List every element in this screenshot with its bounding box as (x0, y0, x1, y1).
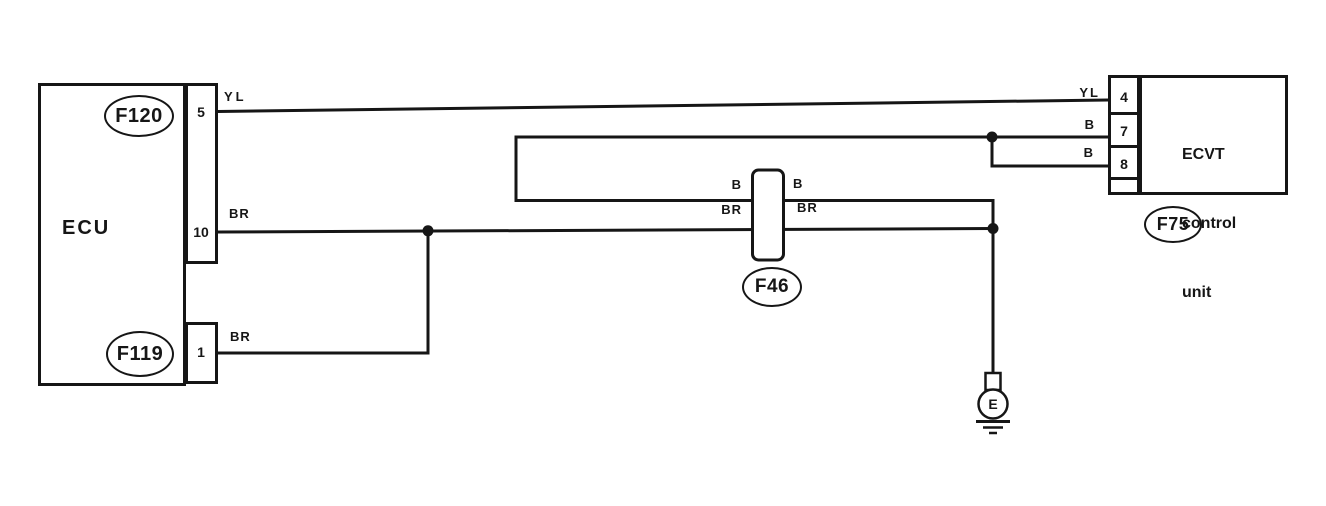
connector-id-f119-text: F119 (117, 343, 163, 366)
wire-label-b-pin7: B (1075, 117, 1095, 132)
ecvt-pin-4: 4 (1108, 89, 1140, 105)
wire-label-yl-left: YL (224, 89, 247, 104)
ecvt-strip-divider-2 (1108, 145, 1140, 148)
ecu-pin-5: 5 (185, 104, 217, 120)
junction-dot-br-left (423, 225, 434, 236)
wire-label-br-right-of-f46: BR (797, 200, 818, 215)
ecvt-strip-divider-3 (1108, 177, 1140, 180)
inline-connector-body (753, 170, 784, 260)
connector-id-f46: F46 (742, 267, 802, 307)
wire-yl (218, 100, 1108, 112)
ecvt-strip-divider-1 (1108, 112, 1140, 115)
ground-label: E (978, 396, 1008, 412)
wire-b (516, 137, 1108, 374)
connector-id-f119: F119 (106, 331, 174, 377)
wire-label-br-pin10: BR (229, 206, 250, 221)
connector-id-f120-text: F120 (115, 105, 163, 128)
ecu-label: ECU (62, 217, 110, 240)
ecvt-label-line1: ECVT (1182, 143, 1236, 166)
connector-id-f120: F120 (104, 95, 174, 137)
ecvt-pin-7: 7 (1108, 123, 1140, 139)
wire-label-b-pin8: B (1074, 145, 1094, 160)
ecvt-label-line3: unit (1182, 281, 1236, 304)
wire-label-b-left-of-f46: B (722, 177, 742, 192)
connector-id-f46-text: F46 (755, 276, 789, 298)
wire-label-br-left-of-f46: BR (712, 202, 742, 217)
wire-br (218, 229, 993, 233)
ecu-pin-10: 10 (185, 224, 217, 240)
wire-label-br-pin1: BR (230, 329, 251, 344)
wire-label-yl-right: YL (1070, 85, 1100, 100)
connector-id-f75-text: F75 (1157, 214, 1190, 235)
ground-terminal (986, 373, 1001, 390)
ecu-pin-1: 1 (185, 344, 217, 360)
wiring-diagram: ECU F120 F119 5 10 1 YL BR BR B B BR BR … (0, 0, 1326, 506)
ecvt-pin-8: 8 (1108, 156, 1140, 172)
connector-id-f75: F75 (1144, 206, 1202, 243)
junction-dot-b-pins (987, 132, 998, 143)
junction-dot-ground (988, 223, 999, 234)
wire-label-b-right-of-f46: B (793, 176, 803, 191)
